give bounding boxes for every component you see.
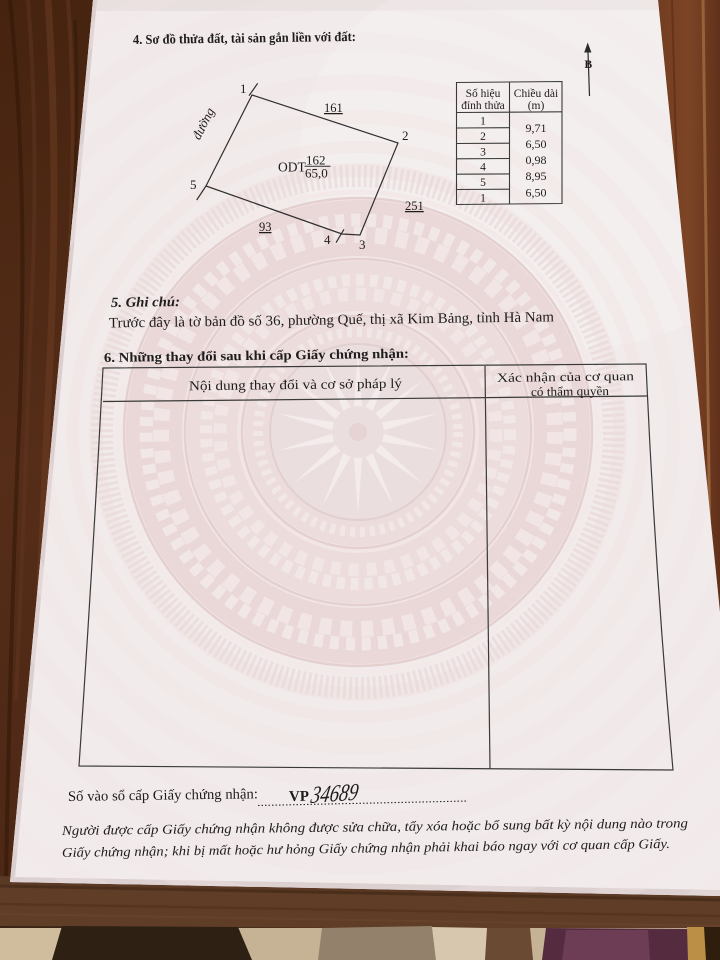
- svg-text:161: 161: [324, 101, 343, 115]
- svg-text:4: 4: [480, 162, 486, 174]
- svg-text:8,95: 8,95: [526, 169, 547, 183]
- svg-text:3: 3: [359, 237, 366, 252]
- svg-text:93: 93: [259, 220, 272, 234]
- svg-text:9,71: 9,71: [526, 121, 547, 135]
- svg-text:65,0: 65,0: [305, 166, 328, 181]
- svg-text:ODT: ODT: [278, 160, 306, 175]
- svg-text:Số hiệu: Số hiệu: [466, 87, 501, 100]
- svg-text:B: B: [585, 59, 593, 71]
- svg-text:3: 3: [480, 146, 486, 158]
- svg-text:34689: 34689: [308, 779, 360, 809]
- svg-text:Chiều dài: Chiều dài: [514, 87, 558, 100]
- svg-text:4: 4: [324, 232, 331, 247]
- svg-text:Số vào sổ cấp Giấy chứng nhận:: Số vào sổ cấp Giấy chứng nhận:: [68, 786, 258, 805]
- svg-text:Xác nhận của cơ quan: Xác nhận của cơ quan: [497, 369, 635, 385]
- svg-text:1: 1: [240, 81, 247, 96]
- svg-text:1: 1: [480, 192, 486, 204]
- svg-text:2: 2: [402, 128, 409, 143]
- svg-text:1: 1: [480, 116, 486, 128]
- svg-text:5. Ghi chú:: 5. Ghi chú:: [111, 295, 180, 311]
- svg-text:Nội dung thay đổi và cơ sở phá: Nội dung thay đổi và cơ sở pháp lý: [189, 376, 402, 394]
- svg-text:5: 5: [190, 177, 197, 192]
- svg-text:có thẩm quyền: có thẩm quyền: [531, 384, 610, 399]
- svg-text:251: 251: [405, 199, 424, 213]
- svg-text:đỉnh thửa: đỉnh thửa: [461, 100, 505, 112]
- svg-text:(m): (m): [528, 100, 545, 112]
- svg-text:4. Sơ đồ thửa đất, tài sản gắn: 4. Sơ đồ thửa đất, tài sản gắn liền với …: [133, 29, 356, 47]
- svg-text:5: 5: [480, 177, 486, 189]
- svg-text:0,98: 0,98: [526, 153, 547, 167]
- svg-text:6,50: 6,50: [526, 137, 547, 151]
- svg-text:2: 2: [480, 131, 486, 143]
- svg-text:6,50: 6,50: [526, 186, 547, 200]
- svg-text:VP: VP: [289, 789, 309, 805]
